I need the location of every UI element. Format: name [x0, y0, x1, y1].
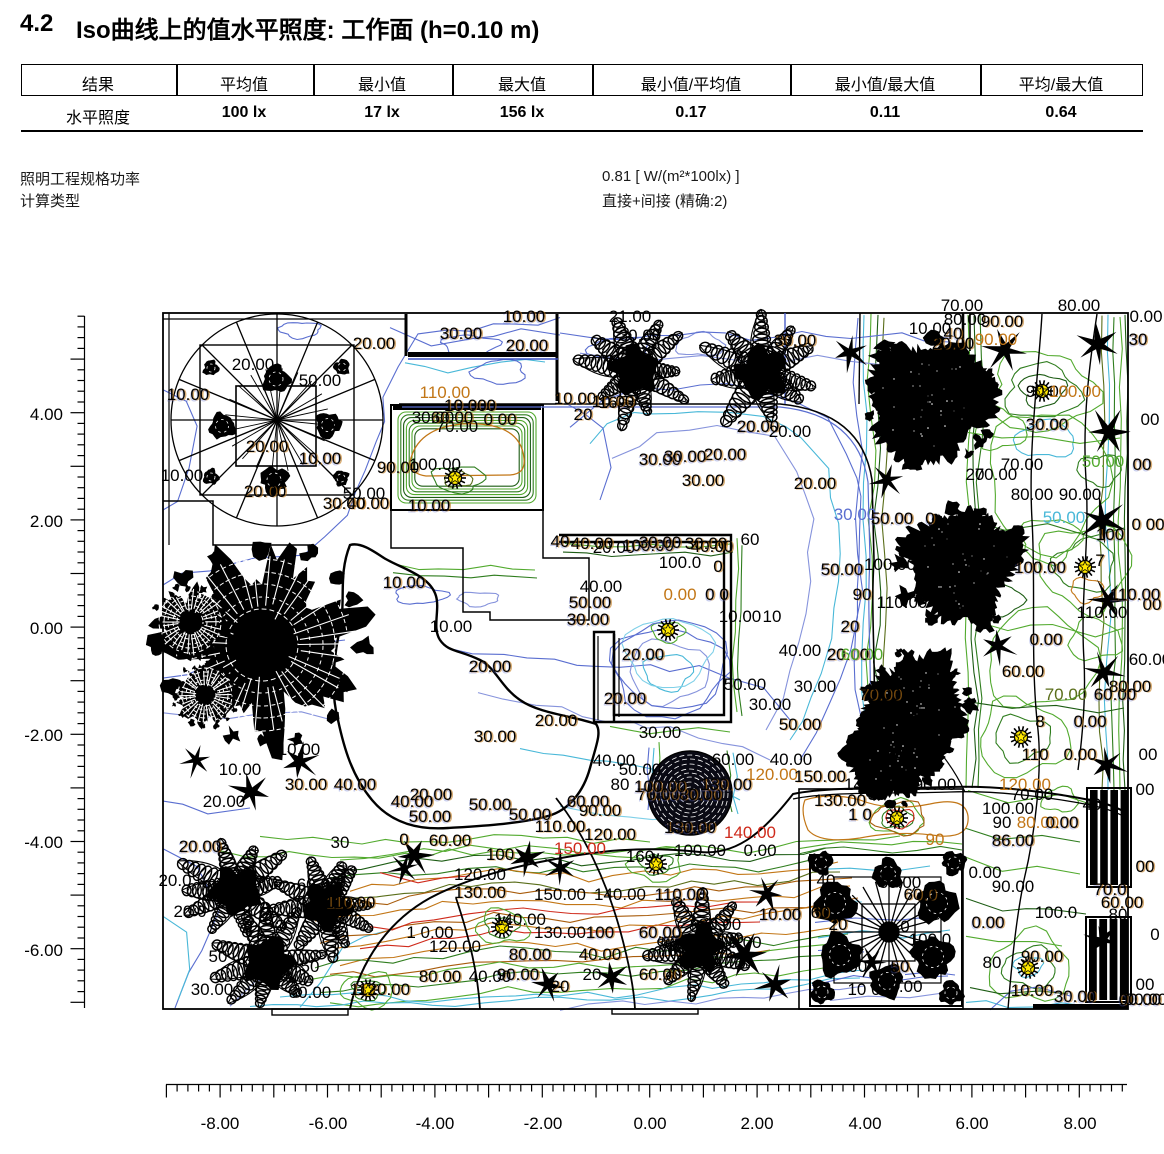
- svg-text:10.00: 10.00: [719, 607, 762, 626]
- svg-text:30: 30: [331, 833, 350, 852]
- svg-text:20 0: 20 0: [173, 902, 206, 921]
- svg-text:70.00: 70.00: [859, 685, 902, 704]
- svg-text:10.00: 10.00: [167, 385, 210, 404]
- svg-text:60.00: 60.00: [1129, 650, 1164, 669]
- svg-text:50.00: 50.00: [871, 509, 914, 528]
- svg-text:80: 80: [1109, 905, 1128, 924]
- svg-text:20.00: 20.00: [232, 355, 275, 374]
- svg-text:10.00: 10.00: [278, 740, 321, 759]
- svg-text:100.00: 100.00: [1014, 558, 1066, 577]
- svg-text:10.00: 10.00: [408, 496, 451, 515]
- svg-text:50.00: 50.00: [409, 807, 452, 826]
- svg-text:0.00: 0.00: [663, 585, 696, 604]
- svg-text:100.0: 100.0: [659, 553, 702, 572]
- svg-text:30: 30: [1129, 330, 1148, 349]
- svg-text:40.00: 40.00: [334, 775, 377, 794]
- svg-text:90.00: 90.00: [914, 775, 957, 794]
- svg-text:10.00: 10.00: [759, 905, 802, 924]
- svg-text:80.00: 80.00: [509, 945, 552, 964]
- svg-text:80: 80: [983, 953, 1002, 972]
- svg-text:-6.00: -6.00: [24, 941, 63, 960]
- svg-text:20.00: 20.00: [179, 837, 222, 856]
- svg-text:80.00: 80.00: [419, 967, 462, 986]
- svg-text:60.00: 60.00: [639, 923, 682, 942]
- svg-text:30.00: 30.00: [1054, 987, 1097, 1006]
- svg-text:00: 00: [1139, 745, 1158, 764]
- svg-text:20.00: 20.00: [469, 657, 512, 676]
- svg-text:20: 20: [551, 977, 570, 996]
- svg-text:0.00: 0.00: [968, 863, 1001, 882]
- svg-text:00: 00: [1133, 455, 1152, 474]
- svg-text:70.00: 70.00: [975, 465, 1018, 484]
- svg-text:30.00: 30.00: [191, 980, 234, 999]
- svg-text:60.00: 60.00: [429, 831, 472, 850]
- svg-text:150.00: 150.00: [534, 885, 586, 904]
- svg-text:50: 50: [891, 957, 910, 976]
- svg-text:50.00: 50.00: [1082, 452, 1125, 471]
- svg-text:130.00: 130.00: [664, 818, 716, 837]
- svg-text:50.00: 50.00: [724, 675, 767, 694]
- svg-text:110.00: 110.00: [1110, 585, 1161, 604]
- svg-text:10.00: 10.00: [430, 617, 473, 636]
- svg-text:60.00: 60.00: [1002, 662, 1045, 681]
- svg-text:70.00: 70.00: [1045, 685, 1088, 704]
- svg-text:0.00: 0.00: [1129, 307, 1162, 326]
- svg-text:20: 20: [574, 405, 593, 424]
- svg-text:30.00: 30.00: [285, 775, 328, 794]
- svg-text:90: 90: [853, 585, 872, 604]
- svg-text:20.00: 20.00: [506, 336, 549, 355]
- svg-text:30.00: 30.00: [639, 723, 682, 742]
- svg-text:00: 00: [1141, 410, 1160, 429]
- svg-text:6.00: 6.00: [955, 1114, 988, 1133]
- svg-text:0: 0: [1150, 925, 1159, 944]
- svg-text:10 0: 10 0: [847, 980, 880, 999]
- svg-text:0.00: 0.00: [971, 913, 1004, 932]
- svg-text:8.00: 8.00: [1063, 1114, 1096, 1133]
- svg-text:20: 20: [583, 965, 602, 984]
- svg-text:20: 20: [829, 915, 848, 934]
- svg-text:30.00: 30.00: [474, 727, 517, 746]
- svg-text:60.00: 60.00: [841, 645, 884, 664]
- svg-text:100.00: 100.00: [409, 455, 461, 474]
- svg-text:20.00: 20.00: [203, 792, 246, 811]
- svg-text:100: 100: [486, 845, 514, 864]
- svg-text:40.00: 40.00: [571, 534, 614, 553]
- svg-text:110: 110: [1021, 745, 1048, 764]
- svg-text:21.00: 21.00: [609, 307, 652, 326]
- svg-text:00: 00: [1136, 857, 1155, 876]
- svg-text:130.00: 130.00: [454, 883, 506, 902]
- svg-text:8: 8: [1035, 712, 1044, 731]
- svg-text:120.00: 120.00: [746, 765, 798, 784]
- svg-text:60.00: 60.00: [297, 875, 340, 894]
- svg-text:140.00: 140.00: [724, 823, 776, 842]
- svg-text:20.00: 20.00: [604, 689, 647, 708]
- svg-text:4.00: 4.00: [30, 405, 63, 424]
- svg-text:-6.00: -6.00: [309, 1114, 348, 1133]
- svg-text:40.00: 40.00: [469, 967, 512, 986]
- svg-text:150.00: 150.00: [794, 767, 846, 786]
- svg-text:10.00: 10.00: [503, 307, 546, 326]
- svg-text:10.00: 10.00: [383, 573, 426, 592]
- svg-text:40: 40: [817, 871, 836, 890]
- svg-text:1 0: 1 0: [848, 805, 872, 824]
- svg-text:100: 100: [586, 923, 614, 942]
- svg-text:40: 40: [944, 324, 963, 343]
- svg-text:0.00: 0.00: [728, 933, 761, 952]
- svg-text:90.00: 90.00: [1021, 947, 1064, 966]
- svg-text:50.00: 50.00: [779, 715, 822, 734]
- svg-text:-2.00: -2.00: [524, 1114, 563, 1133]
- svg-text:0.00: 0.00: [743, 841, 776, 860]
- svg-text:20.00: 20.00: [769, 422, 812, 441]
- svg-text:20.00: 20.00: [535, 711, 578, 730]
- svg-text:100.00: 100.00: [674, 841, 726, 860]
- svg-text:30.00: 30.00: [682, 471, 725, 490]
- svg-text:90: 90: [926, 830, 945, 849]
- svg-text:10.00: 10.00: [219, 760, 262, 779]
- svg-text:80: 80: [611, 775, 630, 794]
- svg-text:0.00: 0.00: [1029, 630, 1062, 649]
- svg-text:0.00: 0.00: [1073, 712, 1106, 731]
- svg-text:80.00: 80.00: [1109, 677, 1152, 696]
- svg-text:00: 00: [1136, 780, 1155, 799]
- svg-text:100.0: 100.0: [1035, 903, 1078, 922]
- svg-text:20.00: 20.00: [704, 445, 747, 464]
- svg-text:-2.00: -2.00: [24, 726, 63, 745]
- svg-text:130.00: 130.00: [700, 775, 752, 794]
- svg-text:0: 0: [713, 557, 722, 576]
- svg-text:100.0: 100.0: [909, 930, 952, 949]
- svg-text:50.00: 50.00: [469, 795, 512, 814]
- svg-text:150.00: 150.00: [554, 839, 606, 858]
- svg-text:80.00: 80.00: [1058, 296, 1101, 315]
- svg-text:80.00: 80.00: [1011, 485, 1054, 504]
- svg-text:0.00: 0.00: [1045, 813, 1078, 832]
- svg-text:20.00: 20.00: [622, 645, 665, 664]
- svg-text:7: 7: [1095, 551, 1104, 570]
- svg-text:30.00: 30.00: [619, 326, 662, 345]
- svg-text:10.00: 10.00: [299, 449, 342, 468]
- svg-text:110.00: 110.00: [655, 885, 706, 904]
- svg-text:130.00: 130.00: [534, 923, 586, 942]
- svg-text:-4.00: -4.00: [416, 1114, 455, 1133]
- svg-text:20.00: 20.00: [353, 334, 396, 353]
- svg-text:60.0: 60.0: [903, 885, 936, 904]
- svg-text:0: 0: [925, 509, 934, 528]
- svg-text:60: 60: [741, 530, 760, 549]
- svg-text:16: 16: [599, 393, 618, 412]
- svg-text:90.00: 90.00: [1059, 485, 1102, 504]
- svg-text:100.00: 100.00: [864, 555, 916, 574]
- svg-text:4.00: 4.00: [848, 1114, 881, 1133]
- svg-text:30.00: 30.00: [567, 610, 610, 629]
- svg-text:40.00: 40.00: [579, 945, 622, 964]
- svg-text:40.00: 40.00: [779, 641, 822, 660]
- svg-text:0.00: 0.00: [30, 619, 63, 638]
- svg-text:110.00: 110.00: [877, 593, 928, 612]
- svg-text:70.00: 70.00: [659, 941, 702, 960]
- svg-text:1 0.00: 1 0.00: [406, 923, 453, 942]
- svg-text:30.00: 30.00: [664, 447, 707, 466]
- svg-text:80.00: 80.00: [289, 983, 332, 1002]
- svg-text:90.00: 90.00: [981, 312, 1024, 331]
- svg-text:30.00: 30.00: [774, 331, 817, 350]
- svg-text:-4.00: -4.00: [24, 833, 63, 852]
- svg-text:40.00: 40.00: [347, 494, 390, 513]
- svg-text:30.00: 30.00: [794, 677, 837, 696]
- svg-text:140.00: 140.00: [594, 885, 646, 904]
- svg-text:110.00: 110.00: [535, 817, 586, 836]
- svg-text:30.00: 30.00: [440, 324, 483, 343]
- svg-text:50.00: 50.00: [299, 371, 342, 390]
- svg-text:50: 50: [209, 947, 228, 966]
- svg-text:100.00: 100.00: [634, 777, 686, 796]
- svg-text:80.00: 80.00: [884, 745, 927, 764]
- svg-text:20.00: 20.00: [246, 437, 289, 456]
- svg-text:60.00: 60.00: [639, 965, 682, 984]
- svg-text:80.00: 80.00: [699, 915, 742, 934]
- svg-text:20.0: 20.0: [158, 871, 191, 890]
- svg-text:20.00: 20.00: [244, 482, 287, 501]
- svg-text:30.00: 30.00: [1026, 415, 1069, 434]
- svg-text:80: 80: [868, 785, 887, 804]
- svg-text:110.00: 110.00: [325, 893, 376, 912]
- svg-text:120.00: 120.00: [454, 865, 506, 884]
- svg-text:2.00: 2.00: [740, 1114, 773, 1133]
- svg-text:20.00: 20.00: [794, 474, 837, 493]
- svg-text:2.00: 2.00: [30, 512, 63, 531]
- svg-text:10: 10: [763, 607, 782, 626]
- svg-text:90.00: 90.00: [975, 330, 1018, 349]
- svg-text:86.00: 86.00: [992, 831, 1035, 850]
- svg-text:50: 50: [301, 957, 320, 976]
- svg-text:90: 90: [993, 813, 1012, 832]
- svg-text:50.00: 50.00: [821, 560, 864, 579]
- svg-text:60: 60: [811, 903, 830, 922]
- svg-text:100: 100: [1096, 525, 1124, 544]
- svg-text:00.00: 00.00: [1125, 990, 1164, 1009]
- svg-text:50.00: 50.00: [1043, 508, 1086, 527]
- svg-text:0 00: 0 00: [1131, 515, 1164, 534]
- svg-text:0.00: 0.00: [633, 1114, 666, 1133]
- svg-text:20: 20: [841, 617, 860, 636]
- svg-text:10.00: 10.00: [1011, 981, 1054, 1000]
- svg-text:40: 40: [551, 532, 570, 551]
- svg-text:30.00: 30.00: [749, 695, 792, 714]
- svg-text:0: 0: [399, 830, 408, 849]
- svg-text:-8.00: -8.00: [201, 1114, 240, 1133]
- svg-text:110.00: 110.00: [1077, 603, 1128, 622]
- svg-text:30.00: 30.00: [639, 533, 682, 552]
- svg-text:160: 160: [626, 847, 654, 866]
- svg-text:0 00: 0 00: [483, 410, 516, 429]
- svg-text:40: 40: [1083, 795, 1102, 814]
- svg-text:100.00: 100.00: [1049, 382, 1101, 401]
- svg-text:1120.00: 1120.00: [350, 980, 410, 999]
- svg-text:40.00: 40.00: [825, 957, 868, 976]
- svg-text:10.00: 10.00: [161, 466, 204, 485]
- svg-text:0.00: 0.00: [1063, 745, 1096, 764]
- svg-text:0.00: 0.00: [889, 977, 922, 996]
- svg-text:0 0: 0 0: [705, 585, 729, 604]
